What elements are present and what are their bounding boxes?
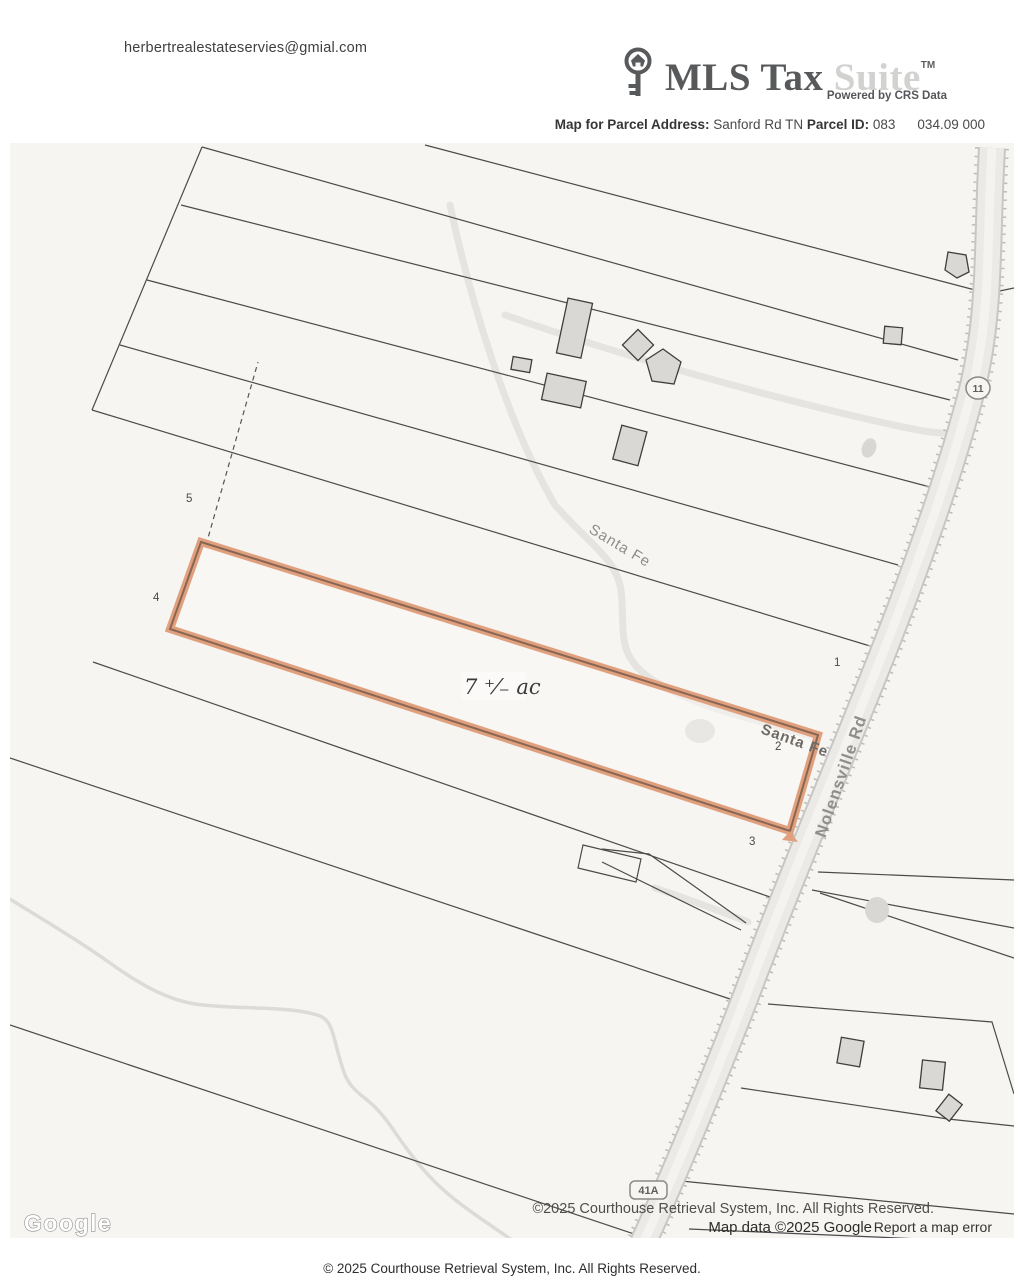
route-41a-shield: 41A	[630, 1181, 667, 1199]
logo-tagline: Powered by CRS Data	[620, 90, 947, 102]
parcel-id-book: 083	[873, 117, 896, 132]
route-11-shield: 11	[966, 377, 990, 399]
parcel-map: 7 ⁺⁄₋ ac 1 2 3 4 5 Santa Fe Santa Fe Nol…	[10, 143, 1014, 1238]
user-email-text: herbertrealestateservies@gmial.com	[124, 40, 367, 56]
map-subtitle: Map for Parcel Address: Sanford Rd TN Pa…	[555, 117, 985, 132]
parcel-map-report-page: herbertrealestateservies@gmial.com MLS T…	[0, 0, 1024, 1280]
parcel-address: Sanford Rd TN	[713, 117, 803, 132]
map-attribution-crs: ©2025 Courthouse Retrieval System, Inc. …	[532, 1201, 934, 1217]
google-logo[interactable]: Google	[24, 1210, 112, 1236]
acreage-annotation: 7 ⁺⁄₋ ac	[464, 675, 541, 699]
route-41a-text: 41A	[638, 1185, 658, 1197]
parcel-number-4: 4	[153, 592, 160, 604]
map-for-label: Map for Parcel Address:	[555, 117, 710, 132]
parcel-id-number: 034.09 000	[917, 117, 985, 132]
page-copyright: © 2025 Courthouse Retrieval System, Inc.…	[0, 1261, 1024, 1276]
parcel-number-3: 3	[749, 836, 755, 848]
parcel-id-label: Parcel ID:	[807, 117, 869, 132]
trademark-symbol: TM	[921, 60, 935, 71]
map-attribution-google: Map data ©2025 Google	[708, 1219, 872, 1236]
parcel-number-5: 5	[186, 493, 192, 505]
report-map-error-link[interactable]: Report a map error	[874, 1219, 993, 1235]
parcel-number-1: 1	[834, 657, 840, 669]
route-11-text: 11	[972, 383, 983, 395]
